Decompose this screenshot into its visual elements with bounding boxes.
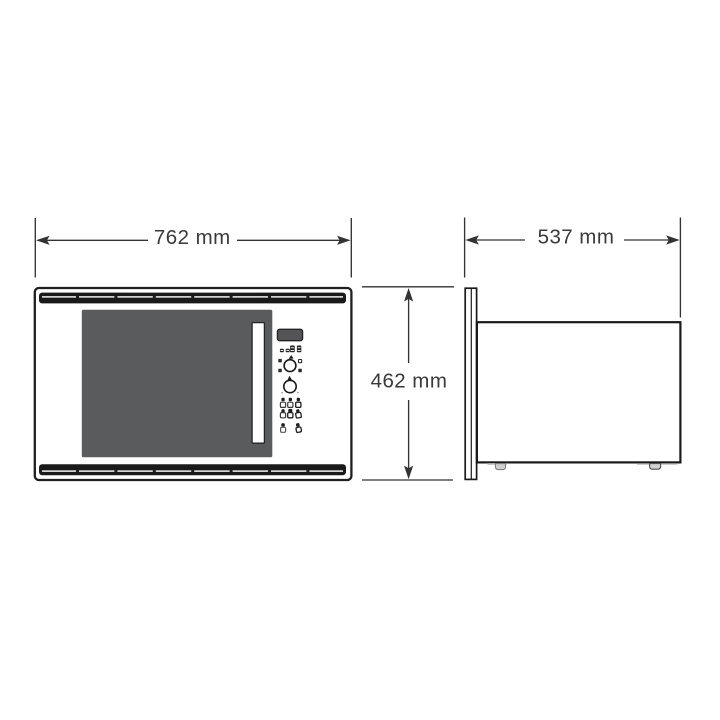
- svg-text:462 mm: 462 mm: [371, 370, 448, 393]
- svg-text:762 mm: 762 mm: [154, 226, 231, 249]
- svg-text:537 mm: 537 mm: [538, 226, 615, 249]
